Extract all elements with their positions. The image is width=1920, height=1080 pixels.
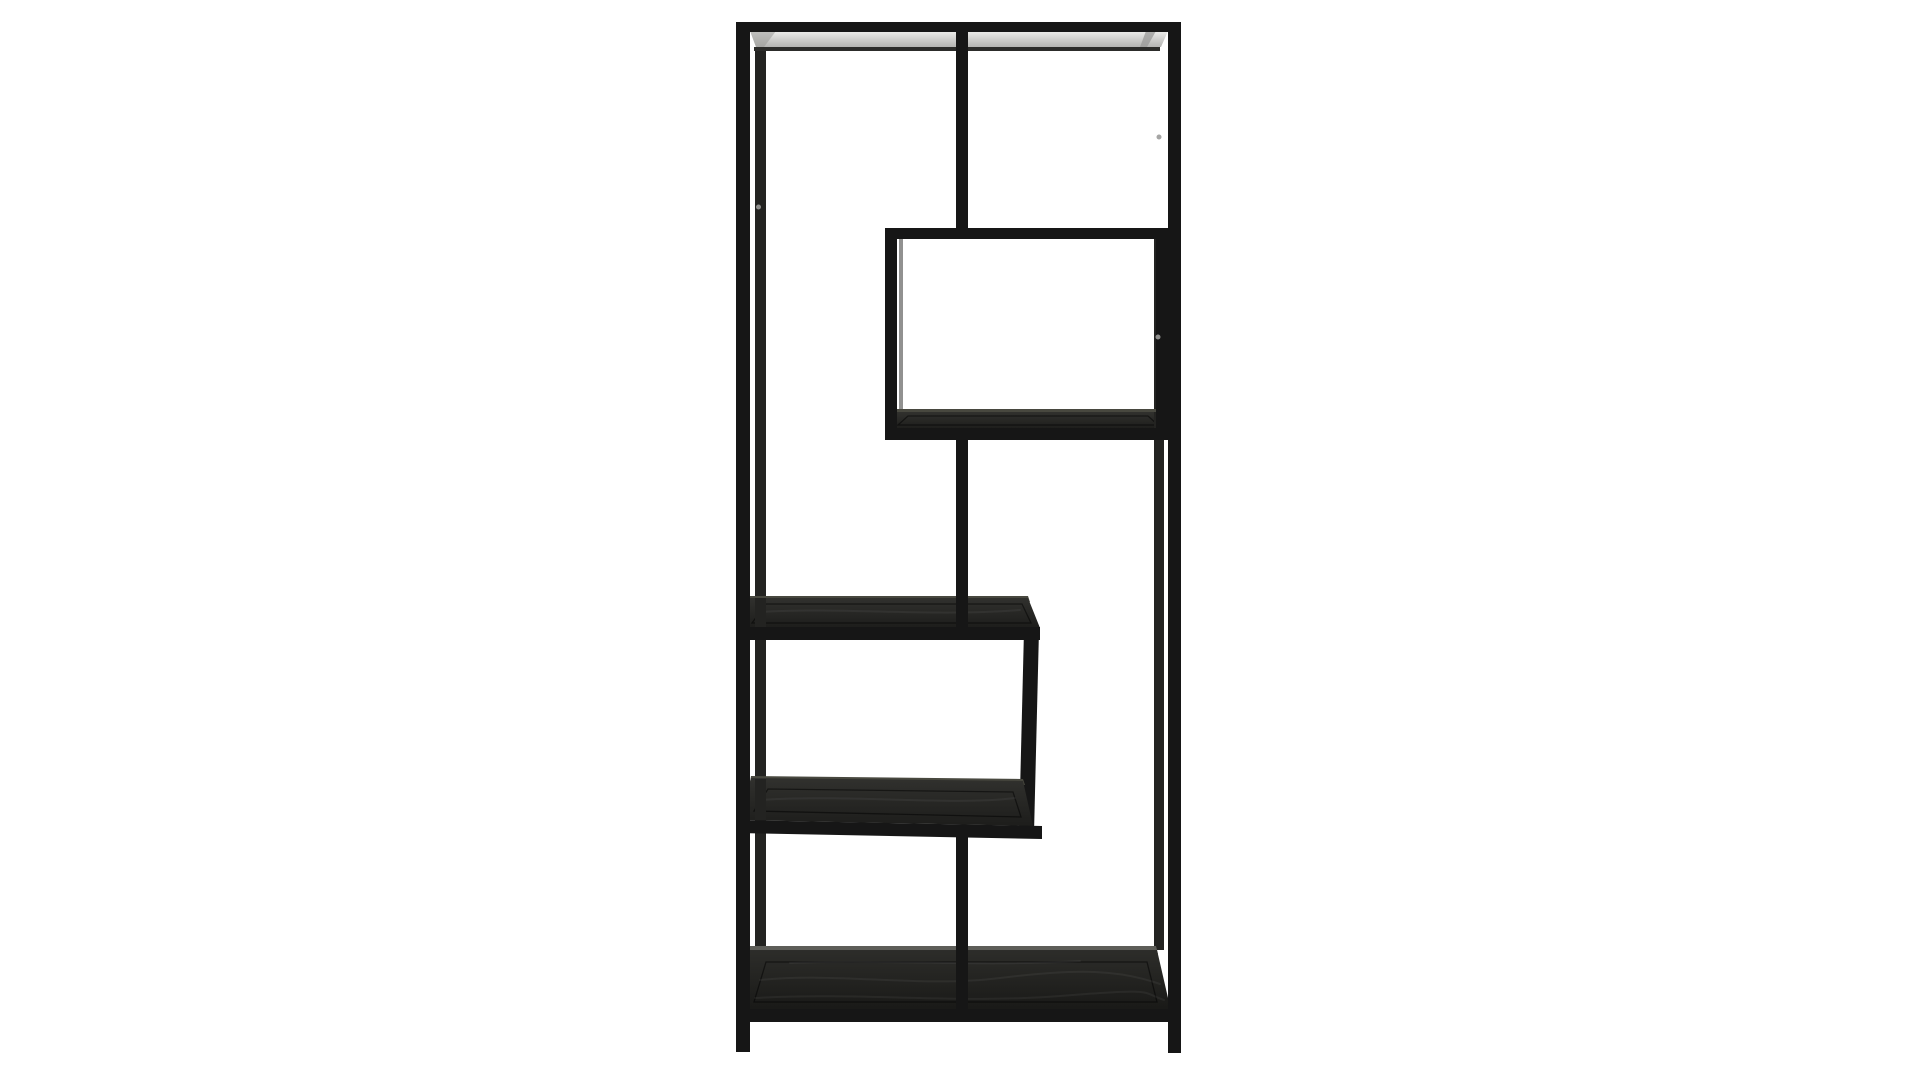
mid-shelf-front-rail (736, 627, 1040, 640)
screw-left-post (756, 205, 761, 210)
bottom-front-rail (736, 1009, 1173, 1022)
lower-shelf-surface (739, 778, 1033, 826)
back-left-post-over-mid-shelf (755, 598, 766, 628)
upper-box-top-rail (885, 228, 1181, 239)
bookshelf-photo (0, 0, 1920, 1080)
center-post-upper-segment (956, 28, 968, 239)
product-photo: Tall asymmetric black metal bookshelf wi… (0, 0, 1920, 1080)
front-left-post (736, 22, 750, 1052)
upper-box-bottom-rail (885, 428, 1175, 440)
center-post-middle-segment (956, 430, 968, 640)
upper-box-back-left-edge (899, 239, 903, 429)
back-left-post-over-lower-shelf (755, 779, 766, 820)
screw-upper-box-panel (1156, 335, 1161, 340)
upper-box-left-panel (885, 228, 897, 440)
screw-right-post (1157, 135, 1162, 140)
front-right-post (1168, 22, 1181, 1053)
center-post-lower-segment (956, 832, 968, 1016)
upper-box-right-panel (1156, 239, 1168, 440)
upper-box-shelf-surface (886, 412, 1171, 429)
